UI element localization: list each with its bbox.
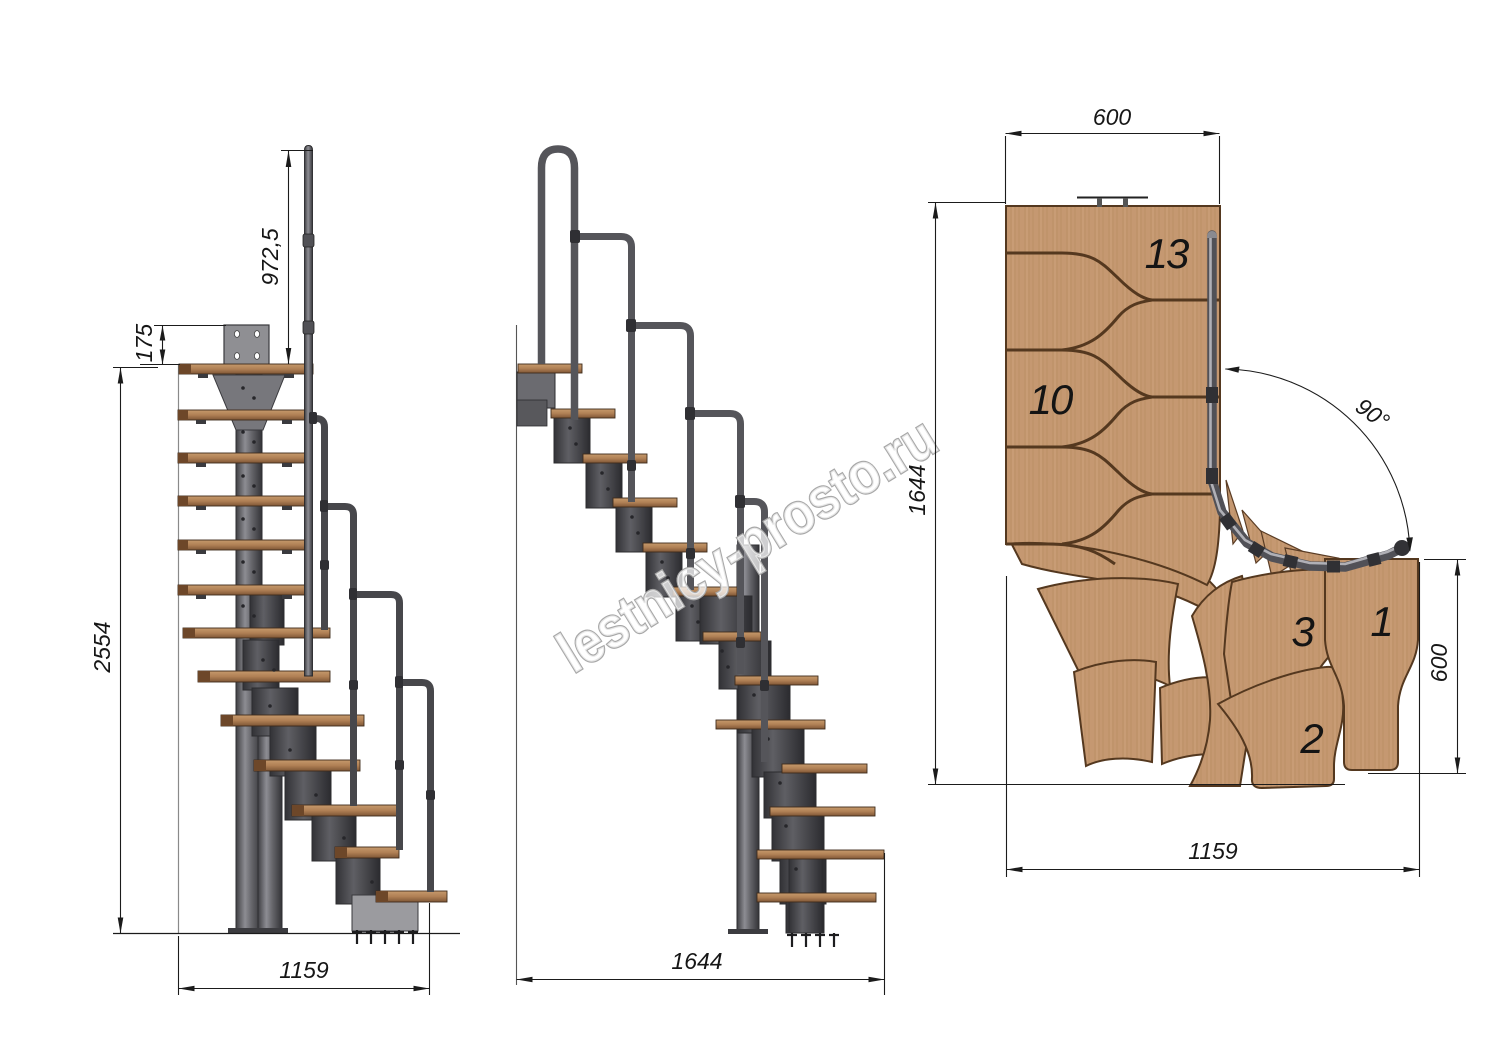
svg-text:13: 13 [1145,230,1189,277]
svg-text:1644: 1644 [671,948,722,974]
svg-text:1644: 1644 [904,464,930,515]
svg-text:3: 3 [1291,608,1314,655]
svg-text:972,5: 972,5 [257,228,283,286]
svg-text:175: 175 [131,324,157,363]
svg-text:600: 600 [1426,644,1452,683]
svg-text:2554: 2554 [89,621,115,673]
svg-text:1159: 1159 [1188,838,1238,864]
svg-text:1: 1 [1370,598,1391,645]
svg-text:1159: 1159 [279,957,329,983]
svg-text:10: 10 [1029,376,1074,423]
svg-text:600: 600 [1093,104,1132,130]
svg-text:2: 2 [1299,715,1323,762]
